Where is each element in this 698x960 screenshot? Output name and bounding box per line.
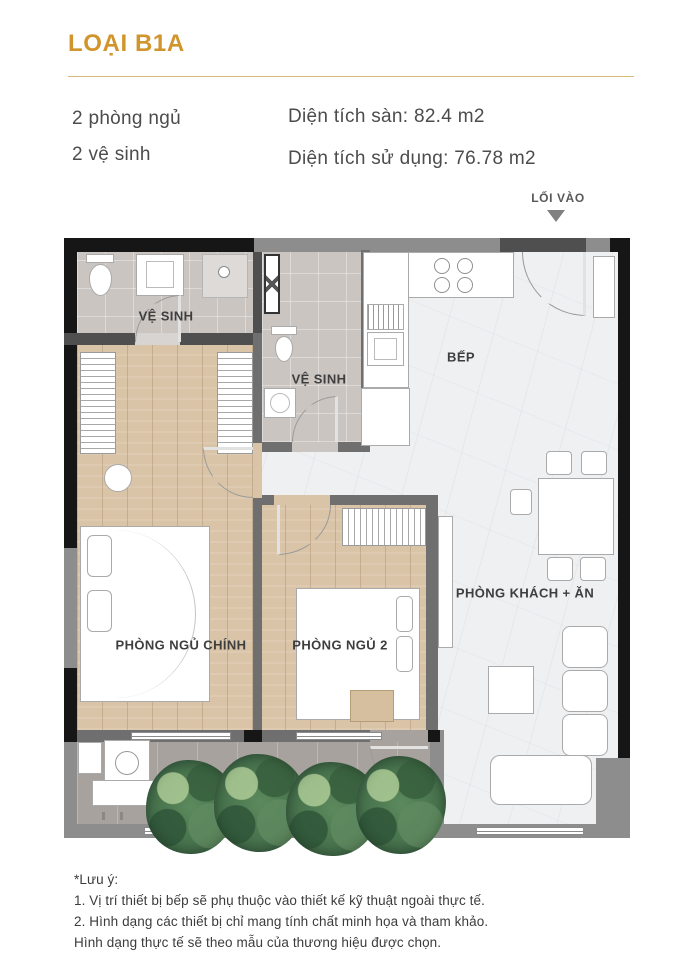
washing-machine-drum-icon bbox=[115, 751, 139, 775]
footnote-line: Hình dạng thực tế sẽ theo mẫu của thương… bbox=[74, 932, 488, 953]
toilet-icon bbox=[271, 326, 297, 335]
wall-left bbox=[64, 238, 77, 548]
wall-top bbox=[254, 238, 500, 252]
living-window bbox=[476, 827, 584, 835]
chair-icon bbox=[547, 557, 573, 581]
bedroom2-wall bbox=[426, 495, 438, 730]
page-title: LOẠI B1A bbox=[68, 30, 185, 58]
toilet-icon bbox=[86, 254, 114, 263]
entry-door-header bbox=[500, 238, 586, 252]
chair-icon bbox=[581, 451, 607, 475]
floor-plan: VỆ SINH VỆ SINH BẾP PHÒNG NGỦ CHÍNH PHÒN… bbox=[64, 238, 630, 838]
spec-bathrooms: 2 vệ sinh bbox=[72, 144, 151, 166]
room-label-master-bedroom: PHÒNG NGỦ CHÍNH bbox=[116, 638, 247, 653]
tap-icon bbox=[120, 812, 123, 820]
wall-top bbox=[64, 238, 254, 252]
burner-icon bbox=[457, 277, 473, 293]
wall-left bbox=[64, 668, 77, 738]
title-underline bbox=[68, 76, 634, 77]
stove-icon bbox=[430, 254, 480, 296]
cabinet-icon bbox=[78, 742, 102, 774]
pillar bbox=[244, 730, 262, 742]
room-label-bedroom2: PHÒNG NGỦ 2 bbox=[292, 638, 387, 653]
wall-corner bbox=[596, 758, 630, 838]
dining-table-icon bbox=[538, 478, 614, 555]
footnote-line: 2. Hình dạng các thiết bị chỉ mang tính … bbox=[74, 911, 488, 932]
footnote-title: *Lưu ý: bbox=[74, 869, 488, 890]
bedroom2-window bbox=[296, 732, 382, 740]
tree-icon bbox=[356, 756, 446, 854]
footnote-line: 1. Vị trí thiết bị bếp sẽ phụ thuộc vào … bbox=[74, 890, 488, 911]
stool-icon bbox=[104, 464, 132, 492]
sink-basin-icon bbox=[146, 261, 174, 288]
pillar bbox=[64, 730, 77, 742]
room-label-bathroom2: VỆ SINH bbox=[292, 372, 347, 387]
master-door-opening bbox=[253, 443, 262, 498]
bathroom1-wall bbox=[253, 252, 262, 345]
sofa-chaise-icon bbox=[490, 755, 592, 805]
burner-icon bbox=[434, 277, 450, 293]
pillow-icon bbox=[87, 590, 112, 632]
burner-icon bbox=[434, 258, 450, 274]
wardrobe-icon bbox=[342, 508, 426, 546]
pillow-icon bbox=[87, 535, 112, 577]
spec-bedrooms: 2 phòng ngủ bbox=[72, 108, 181, 130]
wardrobe-icon bbox=[217, 352, 253, 454]
bathroom2-door-opening bbox=[292, 442, 338, 452]
wardrobe-icon bbox=[80, 352, 116, 454]
tap-icon bbox=[102, 812, 105, 820]
room-label-bathroom1: VỆ SINH bbox=[139, 309, 194, 324]
dish-drainer-icon bbox=[367, 304, 404, 330]
shower-head-icon bbox=[218, 266, 230, 278]
spec-floor-area: Diện tích sàn: 82.4 m2 bbox=[288, 106, 485, 128]
master-window bbox=[131, 732, 231, 740]
coffee-table-icon bbox=[488, 666, 534, 714]
sofa-cushion-icon bbox=[562, 670, 608, 712]
entry-label: LỐI VÀO bbox=[518, 191, 598, 205]
wall-top bbox=[586, 238, 610, 252]
room-label-living-dining: PHÒNG KHÁCH + ĂN bbox=[456, 586, 594, 601]
chair-icon bbox=[580, 557, 606, 581]
shoe-cabinet-icon bbox=[593, 256, 615, 318]
chair-icon bbox=[510, 489, 532, 515]
pillow-icon bbox=[396, 596, 413, 632]
footnotes: *Lưu ý: 1. Vị trí thiết bị bếp sẽ phụ th… bbox=[74, 869, 488, 953]
tv-console-icon bbox=[438, 516, 453, 648]
wall-left bbox=[64, 548, 77, 668]
sink-basin-icon bbox=[374, 338, 397, 360]
pillar bbox=[428, 730, 440, 742]
pillow-icon bbox=[396, 636, 413, 672]
burner-icon bbox=[457, 258, 473, 274]
bedroom2-door-opening bbox=[274, 495, 330, 505]
master-bedroom-wall bbox=[253, 333, 262, 730]
sink-basin-icon bbox=[270, 393, 290, 413]
spec-usable-area: Diện tích sử dụng: 76.78 m2 bbox=[288, 148, 536, 170]
entry-arrow-icon bbox=[547, 210, 565, 222]
sofa-cushion-icon bbox=[562, 626, 608, 668]
chair-icon bbox=[546, 451, 572, 475]
technical-shaft bbox=[264, 254, 280, 314]
sofa-cushion-icon bbox=[562, 714, 608, 756]
wall-right bbox=[618, 238, 630, 758]
fridge-icon bbox=[361, 388, 410, 446]
room-label-kitchen: BẾP bbox=[447, 350, 475, 365]
balcony-wall-left bbox=[64, 738, 77, 838]
desk-icon bbox=[350, 690, 394, 722]
